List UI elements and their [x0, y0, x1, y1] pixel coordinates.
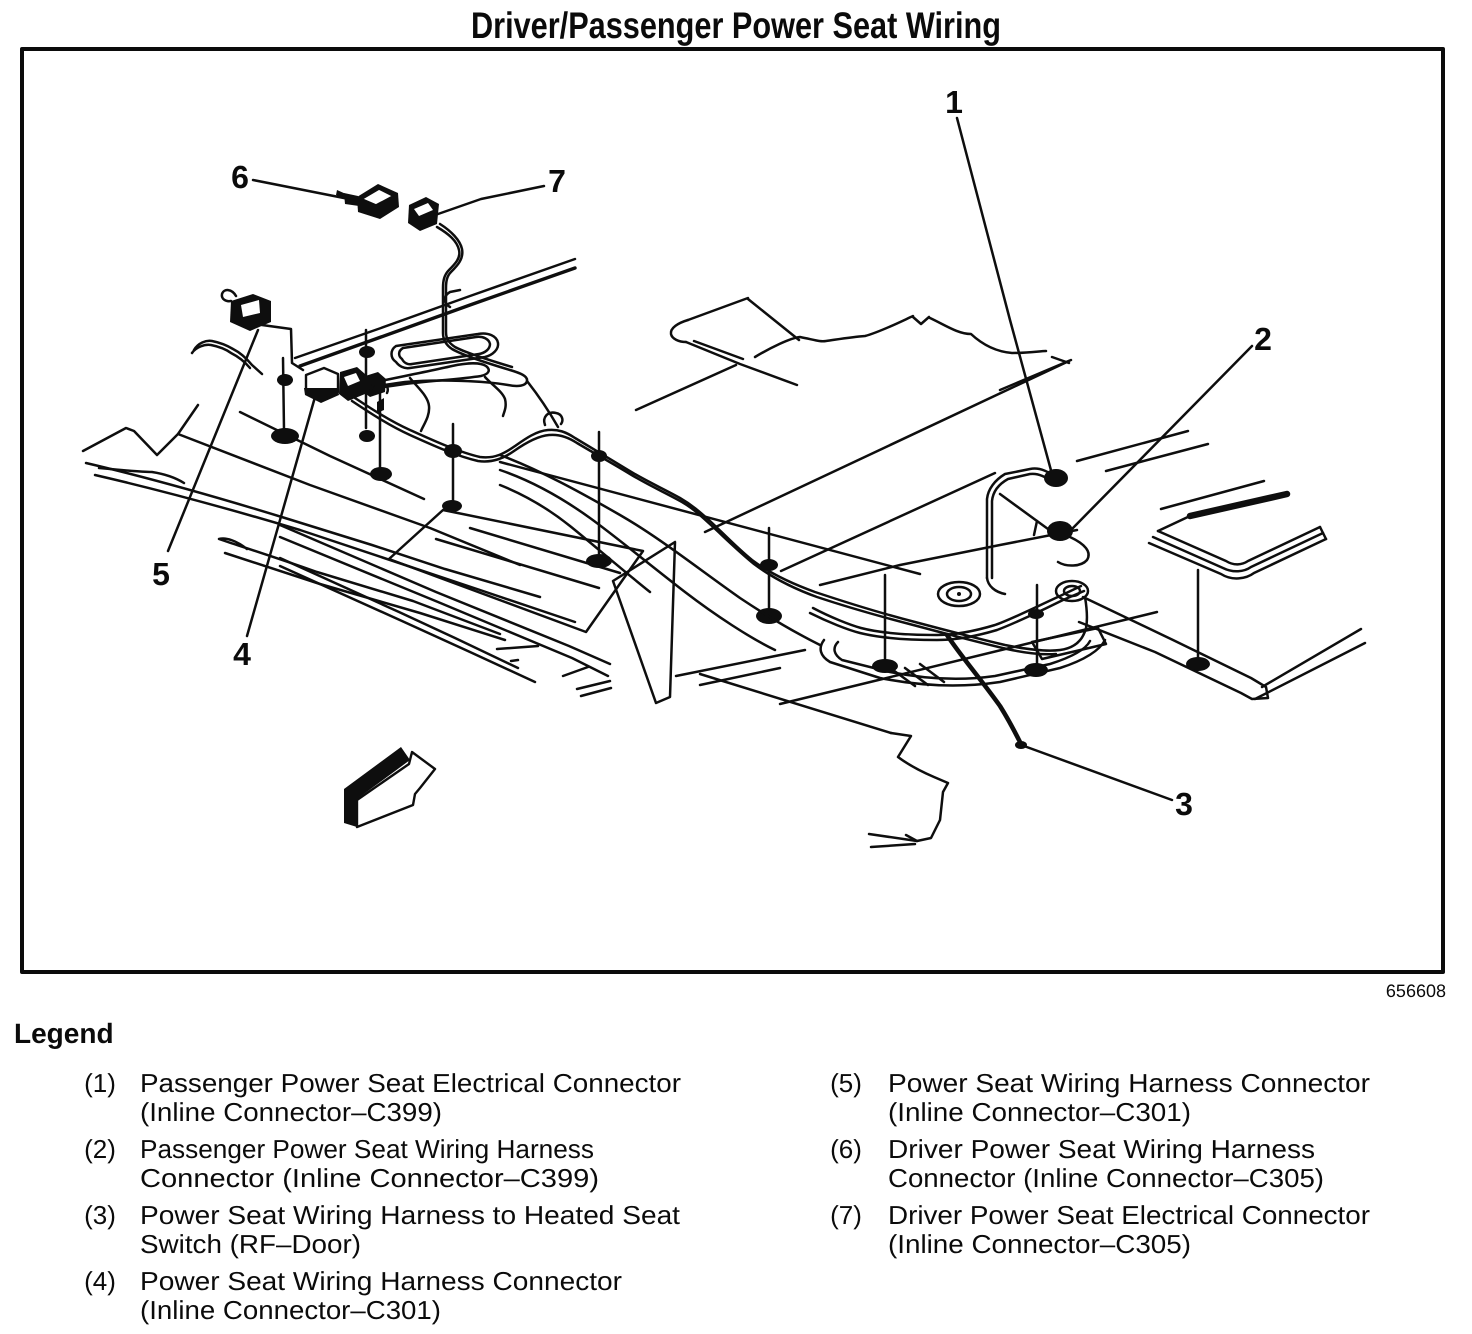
svg-text:(Inline Connector–C301): (Inline Connector–C301) [140, 1295, 441, 1325]
svg-text:656608: 656608 [1386, 981, 1446, 1001]
svg-text:(Inline Connector–C399): (Inline Connector–C399) [140, 1097, 442, 1127]
svg-text:7: 7 [548, 163, 566, 199]
svg-text:Passenger Power Seat Wiring Ha: Passenger Power Seat Wiring Harness [140, 1134, 594, 1164]
svg-text:3: 3 [1175, 786, 1193, 822]
svg-text:Connector (Inline Connector–C3: Connector (Inline Connector–C399) [140, 1163, 599, 1193]
svg-text:(3): (3) [84, 1200, 116, 1230]
svg-text:Legend: Legend [14, 1018, 114, 1049]
svg-text:Power Seat Wiring Harness Conn: Power Seat Wiring Harness Connector [140, 1266, 622, 1296]
svg-text:Driver/Passenger Power Seat Wi: Driver/Passenger Power Seat Wiring [471, 5, 1001, 46]
svg-text:Connector (Inline Connector–C3: Connector (Inline Connector–C305) [888, 1163, 1324, 1193]
svg-text:6: 6 [231, 159, 249, 195]
svg-text:Switch (RF–Door): Switch (RF–Door) [140, 1229, 361, 1259]
svg-text:Driver Power Seat Wiring Harne: Driver Power Seat Wiring Harness [888, 1134, 1315, 1164]
svg-text:(Inline Connector–C301): (Inline Connector–C301) [888, 1097, 1191, 1127]
svg-text:2: 2 [1254, 321, 1272, 357]
svg-text:Driver Power Seat Electrical C: Driver Power Seat Electrical Connector [888, 1200, 1370, 1230]
svg-text:4: 4 [233, 636, 251, 672]
svg-text:(Inline Connector–C305): (Inline Connector–C305) [888, 1229, 1191, 1259]
svg-text:(2): (2) [84, 1134, 116, 1164]
svg-text:1: 1 [945, 84, 963, 120]
svg-text:(7): (7) [830, 1200, 862, 1230]
svg-text:(5): (5) [830, 1068, 862, 1098]
svg-text:Power Seat Wiring Harness Conn: Power Seat Wiring Harness Connector [888, 1068, 1370, 1098]
svg-text:Passenger Power Seat Electrica: Passenger Power Seat Electrical Connecto… [140, 1068, 681, 1098]
svg-text:5: 5 [152, 556, 170, 592]
svg-text:(1): (1) [84, 1068, 116, 1098]
svg-text:Power Seat Wiring Harness to H: Power Seat Wiring Harness to Heated Seat [140, 1200, 681, 1230]
svg-text:(4): (4) [84, 1266, 116, 1296]
svg-text:(6): (6) [830, 1134, 862, 1164]
